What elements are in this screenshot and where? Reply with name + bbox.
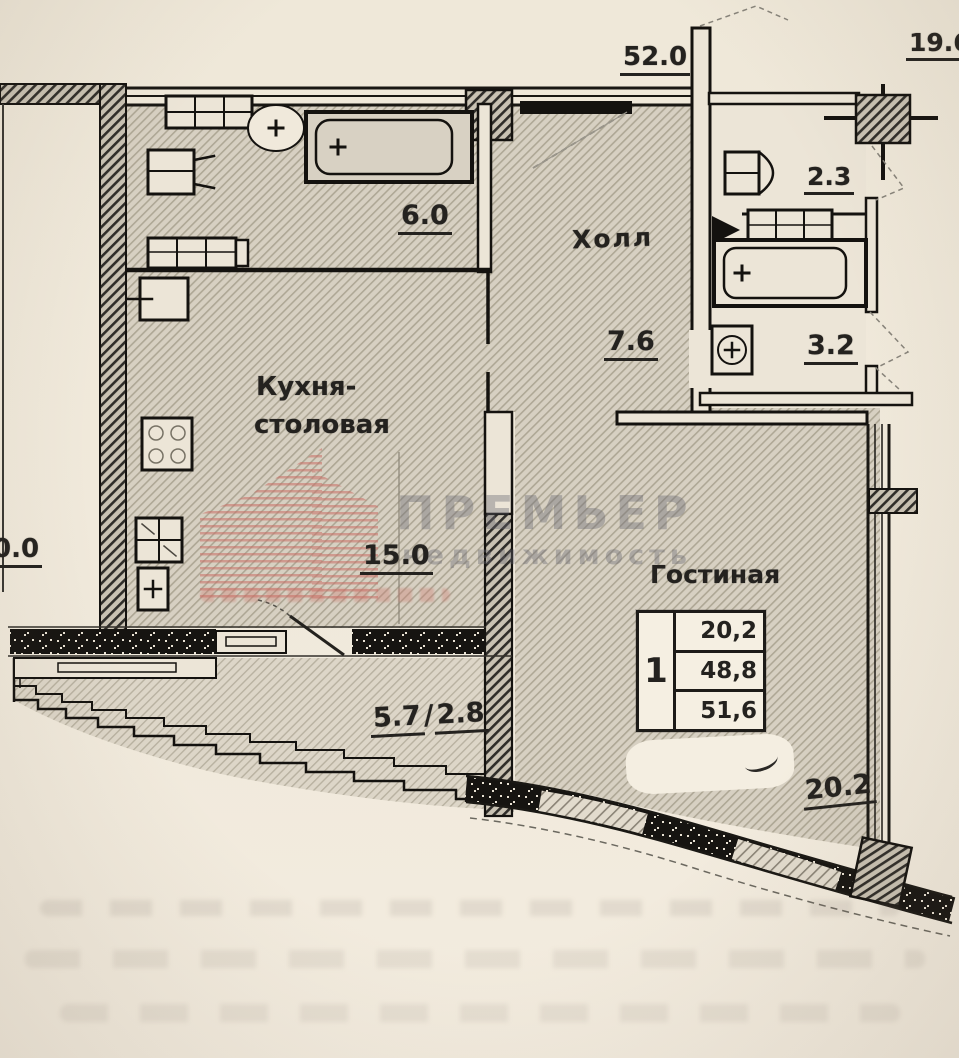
cabinet-icon <box>138 568 168 610</box>
room-label-kitchen-line2: столовая <box>254 410 390 440</box>
toilet-icon <box>712 326 752 374</box>
living-left-wall <box>485 514 512 816</box>
room-label-living: Гостиная <box>650 560 780 589</box>
area-hall: 7.6 <box>604 326 658 361</box>
top-right-wall <box>709 93 859 104</box>
kitchen-sink-icon <box>136 518 182 562</box>
dimension-top-center: 52.0 <box>620 42 690 76</box>
bathroom-right-wall <box>478 104 491 272</box>
wall-segment-dark-right <box>352 629 486 654</box>
room-label-kitchen-line1: Кухня- <box>256 372 356 402</box>
area-bathroom: 6.0 <box>398 200 452 235</box>
column-top-right <box>856 95 910 143</box>
wall-segment-dark-left <box>10 629 216 654</box>
living-left-wall-door <box>485 412 512 514</box>
stove-icon <box>142 418 192 470</box>
bathtub-2-icon <box>714 240 866 306</box>
area-balcony: 5.7/2.8 <box>369 697 488 734</box>
living-area-value: 20,2 <box>676 613 763 653</box>
dimension-top-right: 19.6 <box>906 28 959 61</box>
wet-rooms-bottom-wall <box>700 393 912 405</box>
balcony-window-sill <box>14 658 216 678</box>
area-living: 20.2 <box>801 768 876 806</box>
room-label-hall: Холл <box>572 223 654 255</box>
total-with-balcony-value: 51,6 <box>676 692 763 729</box>
floor-plan-scan: ПРЕМЬЕР недвижимость 52.0 19.6 0.0 6.0 Х… <box>0 0 959 1058</box>
radiator-icon <box>166 96 252 128</box>
column-living-right <box>869 489 917 513</box>
agency-logo <box>200 448 390 600</box>
living-top-wall <box>617 412 867 424</box>
hall-floor <box>486 104 694 412</box>
area-kitchen: 15.0 <box>360 540 433 575</box>
washer-icon <box>748 210 832 240</box>
logo-tower-middle <box>252 448 322 600</box>
apartment-summary-table: 1 20,2 48,8 51,6 <box>636 610 766 732</box>
exterior-wall-left <box>100 84 126 630</box>
area-wc-top: 2.3 <box>804 162 854 195</box>
bathtub-icon <box>306 112 472 182</box>
logo-tower-right <box>312 470 378 600</box>
floor-plan-drawing <box>0 0 959 1058</box>
rooms-count: 1 <box>639 613 676 729</box>
area-wc-bottom: 3.2 <box>804 330 858 365</box>
dimension-left-partial: 0.0 <box>0 534 42 568</box>
kitchen-counter-icon <box>148 238 248 268</box>
oval-sink-icon <box>248 105 304 151</box>
column-bottom-right <box>850 837 911 906</box>
curved-window-a <box>540 801 645 824</box>
entry-door-wall <box>520 101 632 114</box>
wc-door-opening <box>689 330 713 388</box>
total-area-value: 48,8 <box>676 653 763 693</box>
